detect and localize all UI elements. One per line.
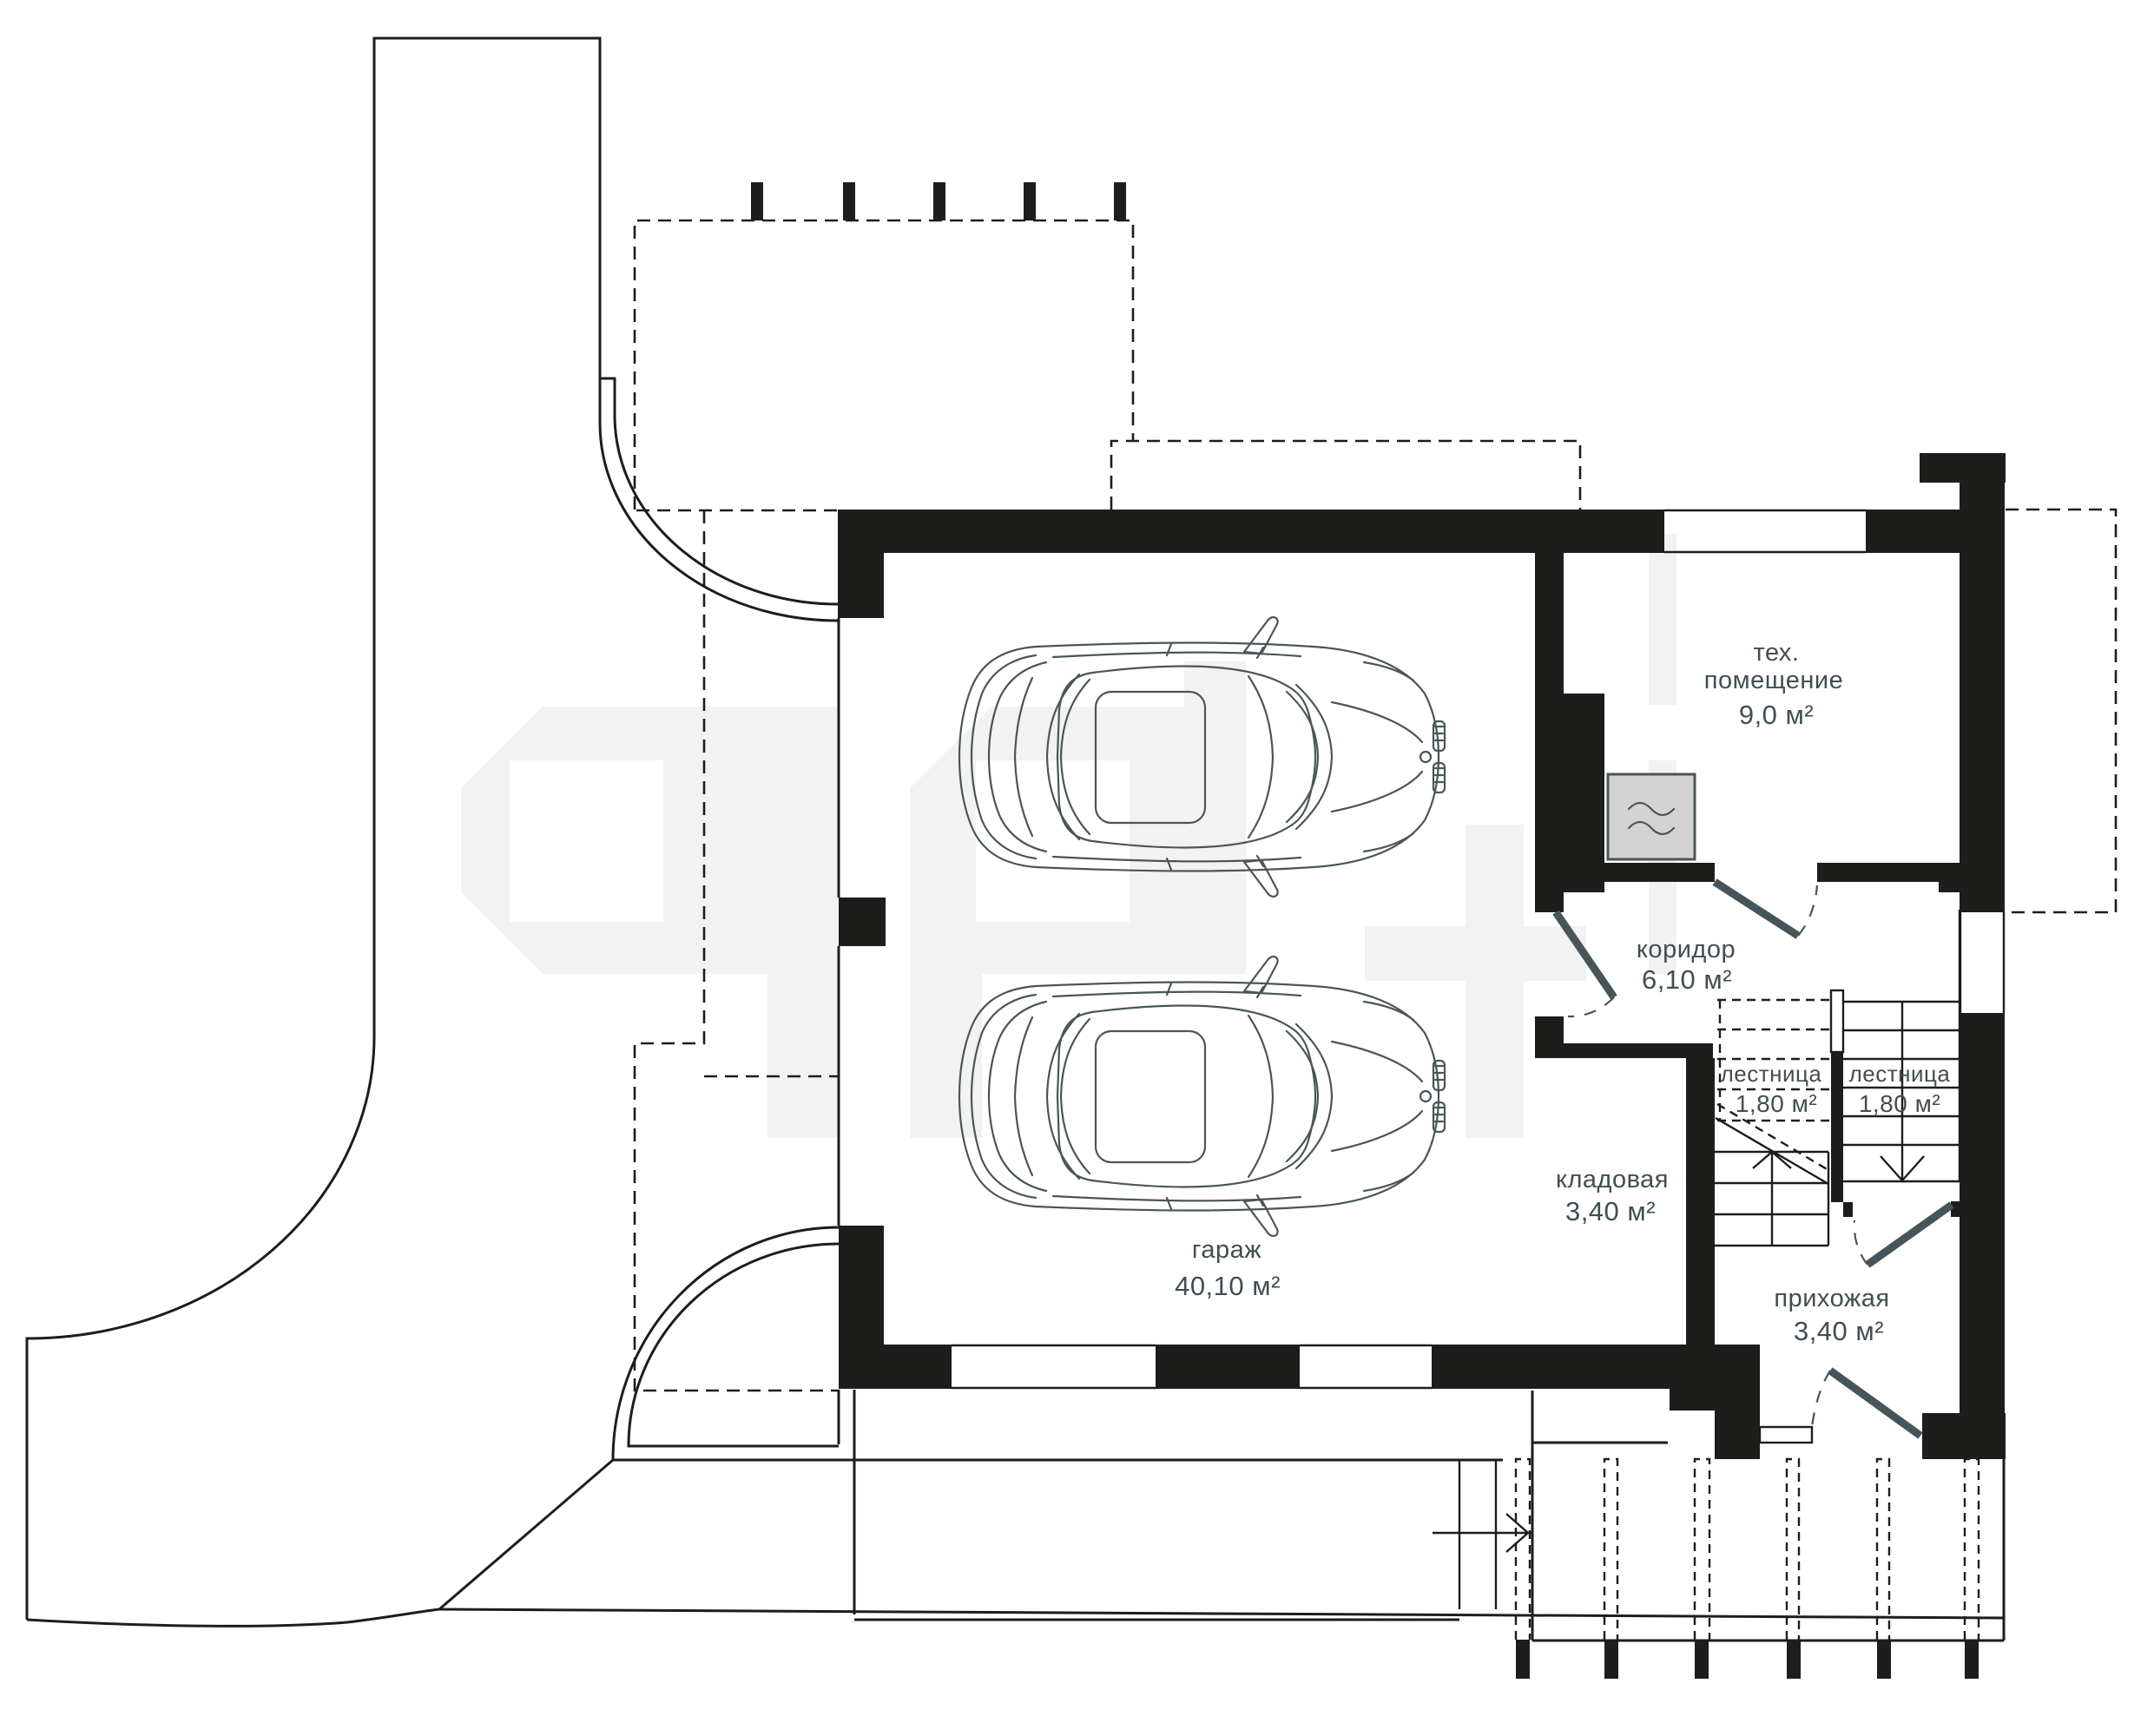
svg-text:3,40 м²: 3,40 м² <box>1565 1196 1656 1226</box>
svg-text:лестница: лестница <box>1721 1061 1822 1087</box>
svg-text:кладовая: кладовая <box>1556 1166 1669 1193</box>
svg-text:1,80 м²: 1,80 м² <box>1736 1090 1817 1117</box>
svg-text:помещение: помещение <box>1704 667 1843 694</box>
svg-text:9,0 м²: 9,0 м² <box>1739 700 1814 730</box>
svg-text:тех.: тех. <box>1753 639 1799 667</box>
svg-text:гараж: гараж <box>1192 1236 1261 1264</box>
svg-text:6,10 м²: 6,10 м² <box>1642 964 1732 995</box>
svg-text:лестница: лестница <box>1849 1061 1951 1087</box>
svg-text:40,10 м²: 40,10 м² <box>1175 1271 1281 1301</box>
svg-text:1,80 м²: 1,80 м² <box>1859 1090 1940 1117</box>
svg-text:прихожая: прихожая <box>1774 1285 1889 1312</box>
svg-text:3,40 м²: 3,40 м² <box>1794 1316 1884 1346</box>
svg-text:коридор: коридор <box>1637 936 1736 963</box>
